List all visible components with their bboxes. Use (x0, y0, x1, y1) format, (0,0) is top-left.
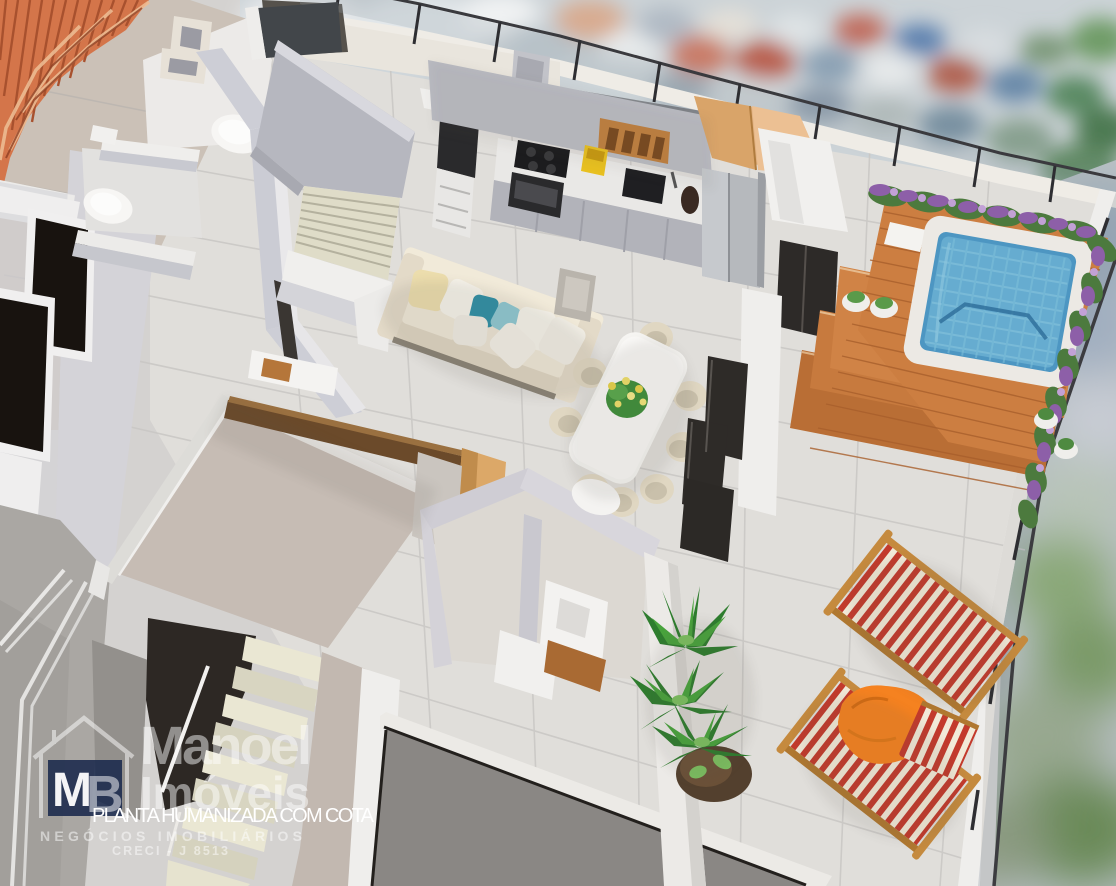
svg-text:PLANTA HUMANIZADA COM COTA: PLANTA HUMANIZADA COM COTA (92, 805, 375, 827)
